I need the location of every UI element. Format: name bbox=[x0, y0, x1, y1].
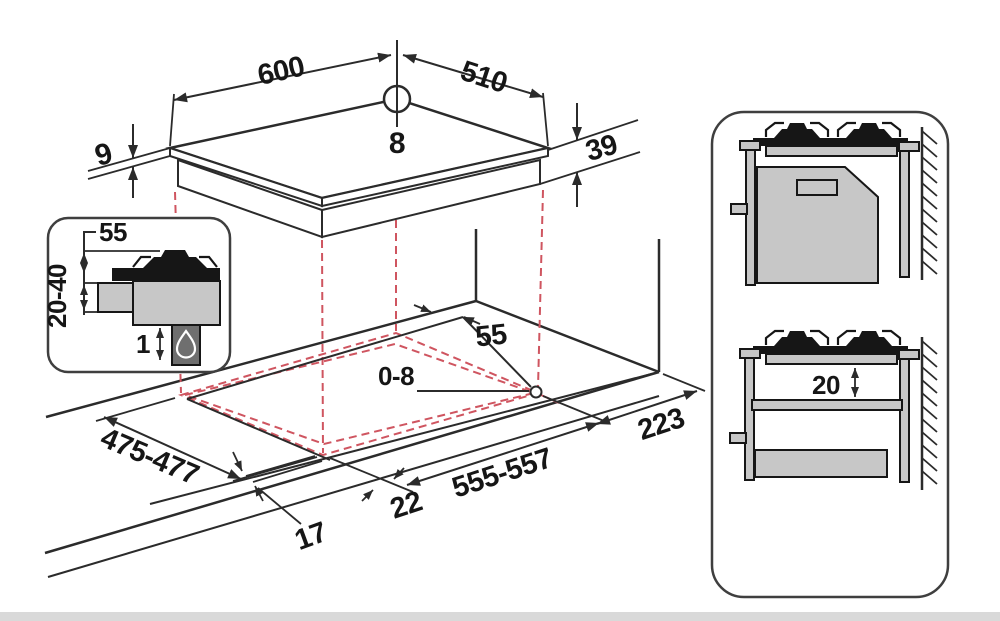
cutout-outline-inner bbox=[185, 344, 534, 444]
hob-width-label: 600 bbox=[255, 51, 308, 92]
bottom-clearance-label: 1 bbox=[136, 329, 150, 359]
cabinet-side-panel bbox=[745, 358, 754, 480]
projection-line-right bbox=[538, 190, 543, 388]
hob-depth-label: 510 bbox=[457, 55, 511, 100]
fixing-bracket bbox=[731, 204, 747, 214]
burner-cap bbox=[161, 250, 189, 257]
ext-line bbox=[543, 93, 548, 146]
shelf-clearance-label: 20 bbox=[812, 370, 840, 400]
dim-arrow bbox=[233, 452, 242, 471]
diagram-canvas: 475-477 555-557 223 17 22 55 0-8 bbox=[0, 0, 1000, 621]
cutout-corner-radius-circle bbox=[531, 387, 542, 398]
ext-line bbox=[330, 458, 413, 492]
pan-support-height-label: 55 bbox=[99, 217, 127, 247]
burner-base bbox=[143, 257, 207, 268]
ext-line bbox=[663, 374, 705, 391]
projection-line-front bbox=[322, 240, 323, 453]
rear-clearance-label: 55 bbox=[474, 318, 509, 353]
ext-line bbox=[170, 94, 174, 146]
hob-surface-side bbox=[753, 346, 908, 354]
body-height-label: 39 bbox=[582, 129, 621, 168]
cabinet-rear-panel bbox=[900, 359, 909, 482]
hob-installation-diagram: 475-477 555-557 223 17 22 55 0-8 bbox=[0, 0, 1000, 621]
hob-body-side bbox=[766, 146, 897, 156]
dim-arrow bbox=[414, 305, 431, 312]
corner-radius-label: 0-8 bbox=[378, 361, 414, 391]
clamp-right bbox=[899, 350, 919, 359]
oven-vent bbox=[797, 180, 837, 195]
separator-shelf bbox=[752, 400, 902, 410]
glass-thickness-label: 9 bbox=[91, 137, 115, 173]
cabinet-rear-panel bbox=[900, 151, 909, 277]
worktop-thickness-label: 20-40 bbox=[42, 264, 72, 328]
cutout-depth-label: 475-477 bbox=[96, 422, 203, 492]
cabinet-side-panel bbox=[746, 150, 755, 285]
drawer-icon bbox=[755, 450, 887, 477]
hole-offset-label: 8 bbox=[389, 127, 405, 160]
cutout-width-label: 555-557 bbox=[448, 442, 556, 504]
bottom-strip bbox=[0, 612, 1000, 621]
clamp-left bbox=[740, 141, 760, 150]
front-offset-label: 17 bbox=[291, 516, 331, 557]
footprint-left-line bbox=[187, 399, 330, 460]
leader-line bbox=[258, 488, 301, 524]
clamp-right bbox=[899, 142, 919, 151]
side-views-panel: 20 bbox=[712, 112, 948, 597]
hob-surface-section bbox=[112, 268, 220, 281]
hob-surface-side bbox=[753, 138, 908, 146]
countertop-front-inner-line bbox=[150, 372, 659, 504]
clamp-left bbox=[740, 349, 760, 358]
detail-inset: 55 20-40 1 bbox=[42, 217, 230, 372]
dim-arrow bbox=[362, 490, 373, 501]
side-offset-label: 22 bbox=[386, 485, 426, 525]
ext-line bbox=[543, 396, 609, 423]
countertop-front-bottom-edge bbox=[48, 396, 659, 577]
hob-body-side bbox=[766, 354, 897, 364]
fixing-bracket bbox=[730, 433, 746, 443]
hob-body-section bbox=[133, 281, 220, 325]
